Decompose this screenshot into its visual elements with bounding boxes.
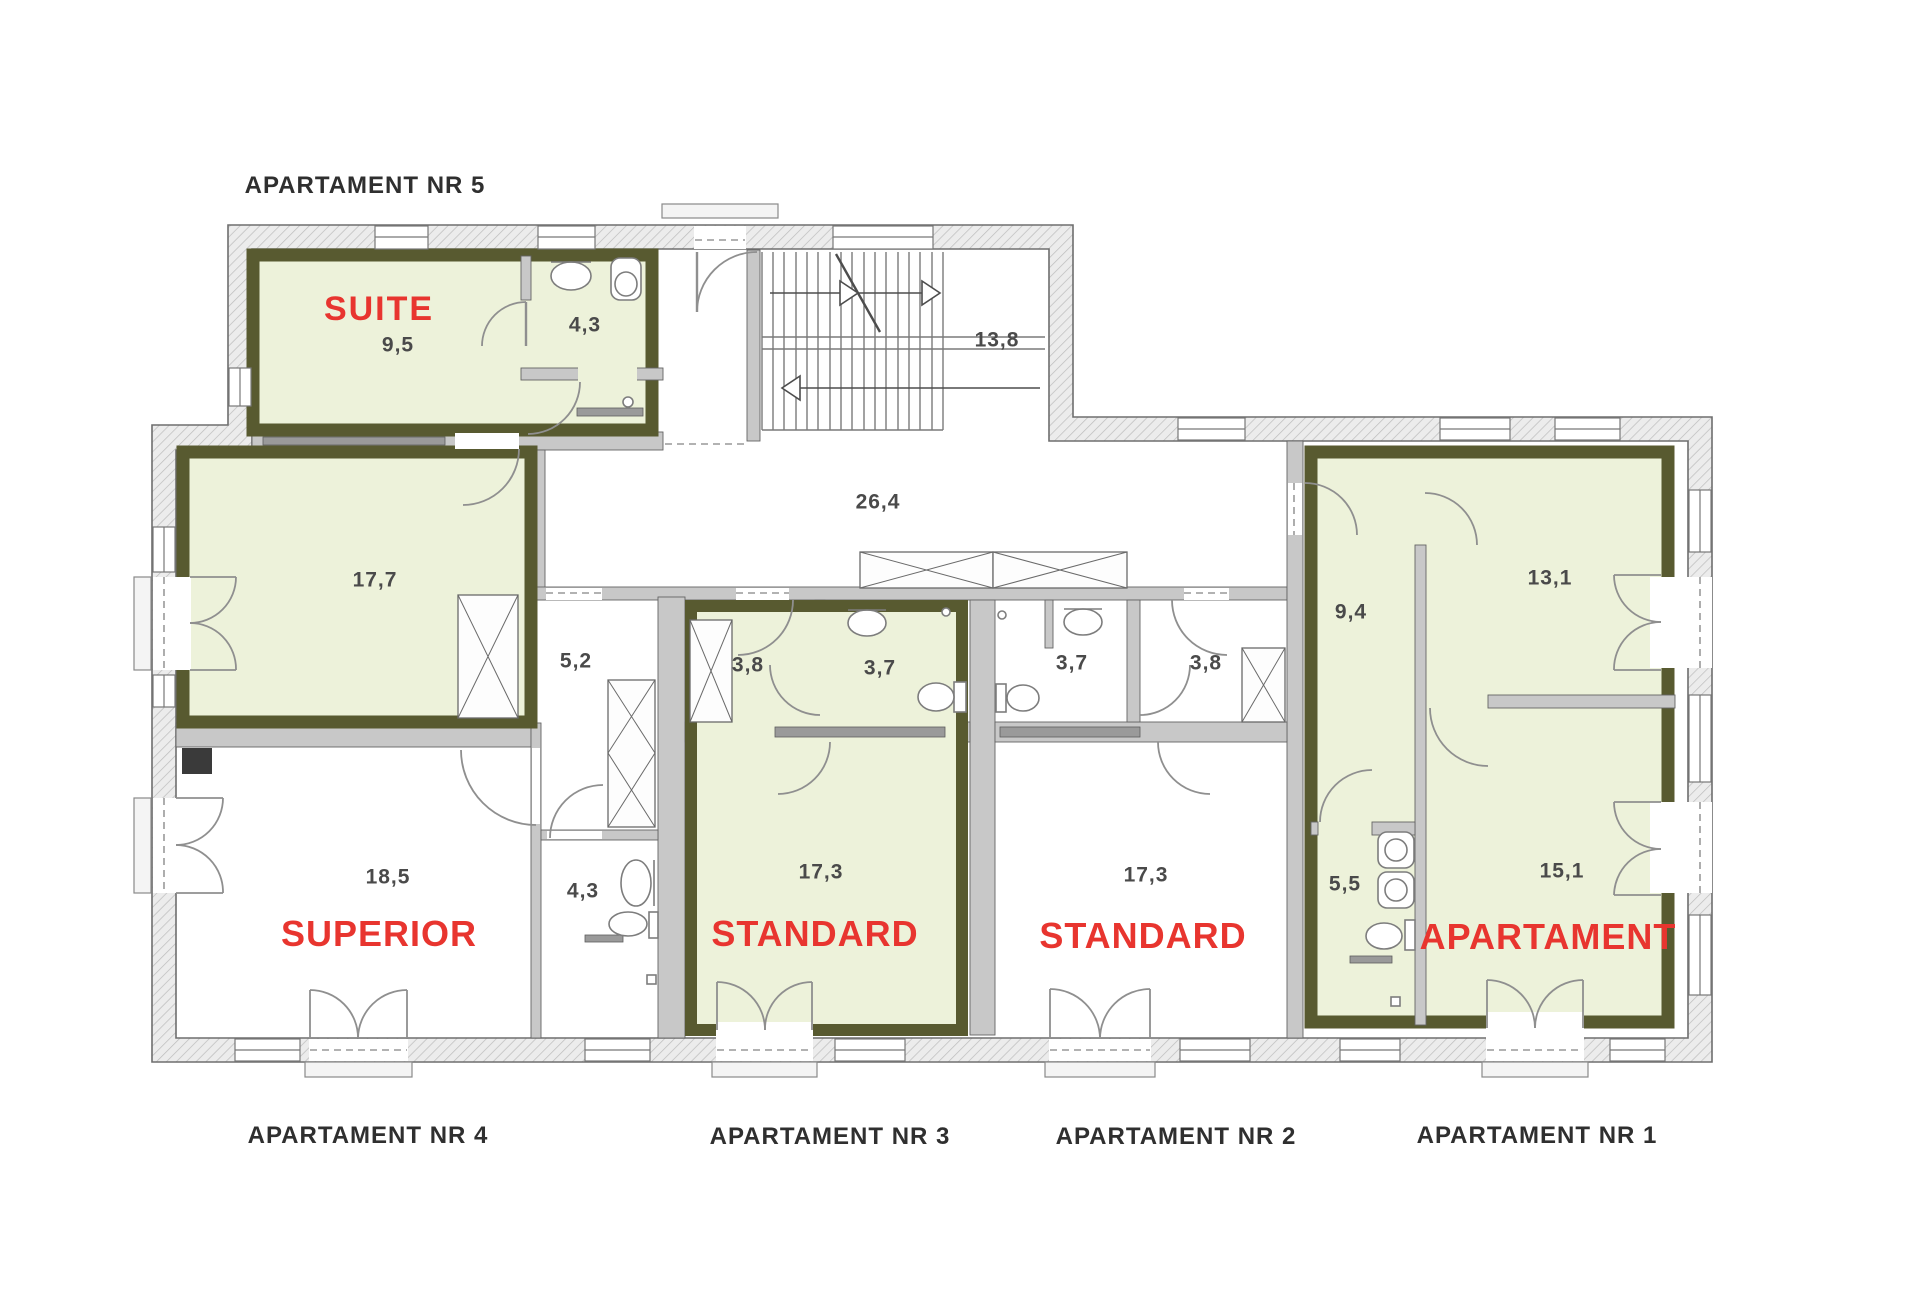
apartment-label-nr4: APARTAMENT NR 4: [248, 1124, 489, 1148]
french-door-nr2: [1050, 989, 1150, 1039]
area-label-nr3-hall: 3,8: [732, 655, 764, 676]
chimney-block: [182, 748, 212, 774]
nr4-toilet: [609, 912, 658, 938]
room-type-label-apartament-nr1: APARTAMENT: [1420, 919, 1677, 955]
suite-sink: [551, 262, 591, 290]
area-label-suite-living: 17,7: [353, 570, 398, 591]
shaft-box: [608, 680, 655, 827]
area-label-nr4-room: 18,5: [366, 867, 411, 888]
area-label-nr2-bath: 3,7: [1056, 653, 1088, 674]
white-gaps-in-partitions: [578, 366, 637, 382]
area-label-nr1-bath: 5,5: [1329, 874, 1361, 895]
suite-block: [253, 255, 652, 430]
suite-closet-box: [458, 595, 518, 718]
nr2-toilet: [996, 684, 1039, 712]
nr3-knob: [942, 608, 950, 616]
entrance-canopy: [662, 204, 778, 218]
area-label-nr2-hall: 3,8: [1190, 653, 1222, 674]
corridor-wardrobe-2: [993, 552, 1127, 588]
corridor-wardrobe-1: [860, 552, 993, 588]
floor-plan-page: APARTAMENT NR 5 APARTAMENT NR 4 APARTAME…: [0, 0, 1919, 1289]
apartment-label-nr2: APARTAMENT NR 2: [1056, 1125, 1297, 1149]
area-label-suite-bath: 4,3: [569, 315, 601, 336]
apartment-label-nr1: APARTAMENT NR 1: [1417, 1124, 1658, 1148]
area-label-staircase: 13,8: [975, 330, 1020, 351]
apartment-label-nr5: APARTAMENT NR 5: [245, 174, 486, 198]
apartment-label-nr3: APARTAMENT NR 3: [710, 1125, 951, 1149]
area-label-nr1-room-top: 13,1: [1528, 568, 1573, 589]
nr2-knob: [998, 611, 1006, 619]
nr3-wardrobe-box: [690, 620, 732, 722]
area-label-nr3-bath: 3,7: [864, 658, 896, 679]
french-door-nr4: [310, 990, 407, 1038]
nr2-wardrobe-box: [1242, 648, 1285, 722]
area-label-nr1-room-bottom: 15,1: [1540, 861, 1585, 882]
room-type-label-suite: SUITE: [324, 292, 434, 326]
area-label-nr4-bath: 4,3: [567, 881, 599, 902]
french-door-superior: [176, 798, 223, 893]
area-label-hall-5-2: 5,2: [560, 651, 592, 672]
suite-door-knob: [623, 397, 633, 407]
nr4-sink: [621, 860, 654, 906]
nr1-knob: [1391, 997, 1400, 1006]
room-type-label-superior: SUPERIOR: [281, 916, 477, 952]
nr2-sink: [1064, 609, 1102, 635]
area-label-nr3-room: 17,3: [799, 862, 844, 883]
nr3-sink: [848, 610, 886, 636]
nr3-toilet: [918, 682, 966, 712]
suite-toilet: [611, 258, 641, 300]
area-label-suite-bedroom: 9,5: [382, 335, 414, 356]
nr4-knob: [647, 975, 656, 984]
area-label-corridor: 26,4: [856, 492, 901, 513]
room-type-label-standard-nr2: STANDARD: [1039, 918, 1246, 954]
area-label-nr1-hall: 9,4: [1335, 602, 1367, 623]
area-label-nr2-room: 17,3: [1124, 865, 1169, 886]
room-type-label-standard-nr3: STANDARD: [711, 916, 918, 952]
